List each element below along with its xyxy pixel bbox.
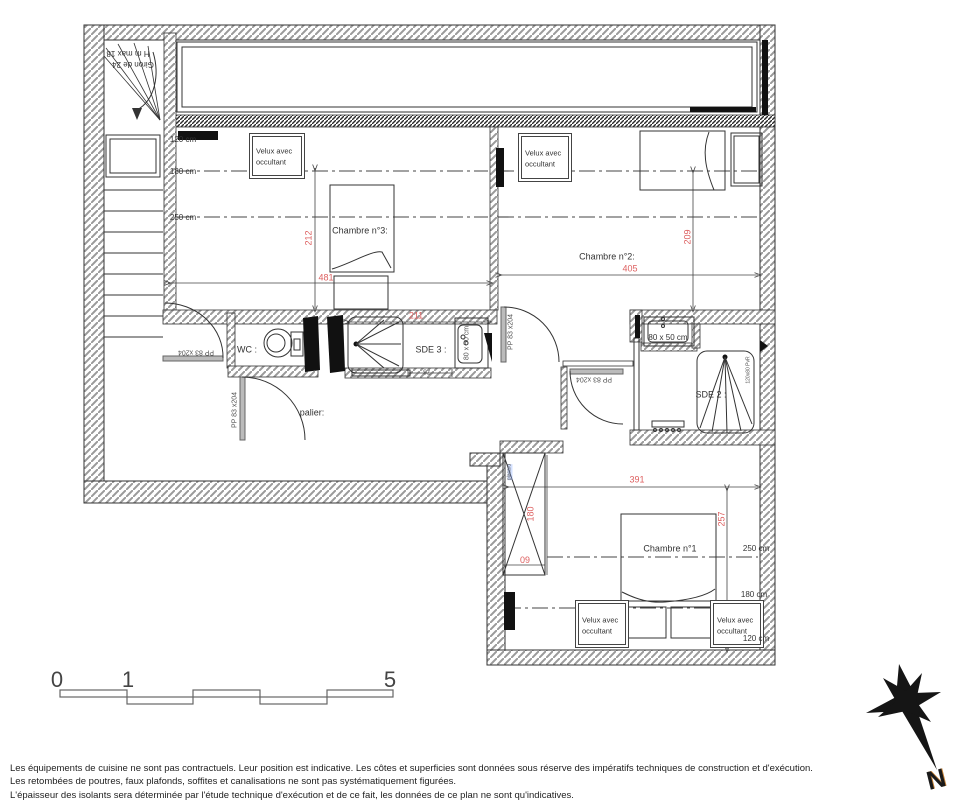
- footer-line-1: Les équipements de cuisine ne sont pas c…: [10, 762, 813, 775]
- footer-line-2: Les retombées de poutres, faux plafonds,…: [10, 775, 813, 788]
- dim-ch2-height: 209: [684, 229, 693, 244]
- door-label-ch2: PP 83 x204: [508, 314, 515, 350]
- ducts: [178, 131, 515, 630]
- bed-ch2: [640, 131, 725, 190]
- pocket-door-jamb: [635, 315, 640, 338]
- staircase: [104, 43, 163, 337]
- dim-ch3-height: 212: [305, 230, 314, 245]
- stair-arrow-head: [132, 108, 142, 120]
- velux-label-ch1l-2: occultant: [582, 627, 612, 635]
- pillow-ch1-right: [671, 607, 713, 638]
- shower-sde2-size: 120x80 PvR: [747, 356, 752, 383]
- wall-sde2-partition-h: [641, 343, 697, 351]
- wall-top: [84, 25, 775, 40]
- room-label-sde3: SDE 3 :: [415, 346, 446, 355]
- dim-ch3-width: 481: [318, 274, 333, 283]
- height-left-180: 180 cm: [170, 168, 196, 176]
- scale-5: 5: [384, 669, 396, 691]
- wall-palier-bottom: [84, 481, 490, 503]
- dim-ch1-width: 391: [629, 476, 644, 485]
- velux-box-ch3: [249, 133, 305, 179]
- room-label-chambre-2: Chambre n°2:: [579, 253, 635, 262]
- door-label-ch3: PP 83 x204: [178, 349, 214, 356]
- dim-wardrobe-height: 180: [527, 506, 536, 521]
- stair-note-line2: H m max 18: [106, 49, 149, 57]
- velux-label-ch3-1: Velux avec: [256, 147, 292, 155]
- shower-sde3: [348, 317, 410, 376]
- room-label-chambre-1: Chambre n°1: [643, 545, 696, 554]
- wall-corridor-thin: [563, 361, 633, 366]
- scale-1: 1: [122, 669, 134, 691]
- floor-plan-page: Chambre n°3: Chambre n°2: Chambre n°1 WC…: [0, 0, 964, 800]
- wardrobe-tag: placard: [508, 464, 513, 480]
- footer-disclaimer: Les équipements de cuisine ne sont pas c…: [10, 762, 813, 800]
- wall-bottom: [487, 650, 775, 665]
- velux-label-ch1l-1: Velux avec: [582, 616, 618, 624]
- door-label-palier: PP 83 x204: [232, 392, 239, 428]
- wall-ch1-top-stub: [500, 441, 563, 453]
- pillow-ch1-left: [625, 607, 666, 638]
- bed-ch3-blanket: [332, 252, 391, 269]
- door-label-sde2: PP 83 x204: [576, 376, 612, 383]
- table-ch3: [334, 276, 388, 309]
- dim-sde3-width: 211: [409, 312, 423, 321]
- room-label-chambre-3: Chambre n°3:: [332, 227, 388, 236]
- roof-strip-inner: [182, 47, 752, 107]
- height-right-250: 250 cm: [743, 545, 769, 553]
- wall-sde2-partition-v: [692, 324, 700, 348]
- wall-corridor-stub: [561, 367, 567, 429]
- room-label-wc: WC :: [237, 346, 257, 355]
- floor-plan-drawing: [0, 0, 964, 800]
- bed-ch1-blanket: [622, 589, 715, 602]
- table-ch2-inner: [734, 136, 759, 183]
- bed-ch2-blanket: [705, 132, 714, 190]
- wall-jog: [470, 453, 500, 466]
- roof-strip-dark-edge: [762, 40, 768, 115]
- compass-rose: [866, 664, 941, 770]
- wall-ch1-left: [487, 453, 505, 665]
- stair-window-inner: [110, 139, 156, 173]
- stair-window-outer: [106, 135, 160, 177]
- roof-strip: [177, 40, 768, 115]
- dim-shower-gap: 73: [423, 368, 431, 375]
- toilet-wc: [264, 329, 303, 357]
- dim-ch1-height: 257: [718, 511, 727, 526]
- wall-wc-bottom: [228, 366, 318, 377]
- room-label-palier: palier:: [300, 409, 325, 418]
- dimension-lines: [168, 168, 758, 649]
- duct-wc-1: [303, 316, 320, 372]
- height-right-120: 120 cm: [743, 635, 769, 643]
- room-label-sde2: SDE 2 :: [695, 391, 726, 400]
- stair-note-line1: Giron de 24: [112, 60, 154, 68]
- height-left-120: 120 cm: [170, 136, 196, 144]
- wall-wc-left: [227, 313, 235, 368]
- sink-sde3: [455, 318, 492, 368]
- table-ch2-outer: [731, 133, 762, 186]
- duct-wc-2: [327, 315, 345, 373]
- velux-label-ch3-2: occultant: [256, 158, 286, 166]
- sink-sde2-size: 80 x 50 cm: [648, 334, 687, 342]
- velux-label-ch2-1: Velux avec: [525, 149, 561, 157]
- height-right-180: 180 cm: [741, 591, 767, 599]
- wall-left: [84, 25, 104, 503]
- wall-rooms-top-band: [173, 115, 775, 127]
- door-palier: [240, 377, 305, 440]
- compass-star-main: [866, 664, 941, 770]
- radiator-partition: [496, 148, 504, 187]
- roof-strip-dark-bottom: [690, 107, 756, 112]
- velux-label-ch1r-1: Velux avec: [717, 616, 753, 624]
- scale-bar: [60, 690, 393, 704]
- height-left-250: 250 cm: [170, 214, 196, 222]
- sink-sde3-size: 80 x 50 cm: [464, 326, 471, 360]
- height-lines: [177, 171, 758, 608]
- dim-ch2-width: 405: [622, 265, 637, 274]
- velux-box-ch2: [518, 133, 572, 182]
- dim-wardrobe-depth: 60: [520, 555, 530, 564]
- velux-label-ch2-2: occultant: [525, 160, 555, 168]
- pocket-door-sde2: [634, 338, 639, 430]
- duct-ch1: [504, 592, 515, 630]
- footer-line-3: L'épaisseur des isolants sera déterminée…: [10, 789, 813, 800]
- scale-0: 0: [51, 669, 63, 691]
